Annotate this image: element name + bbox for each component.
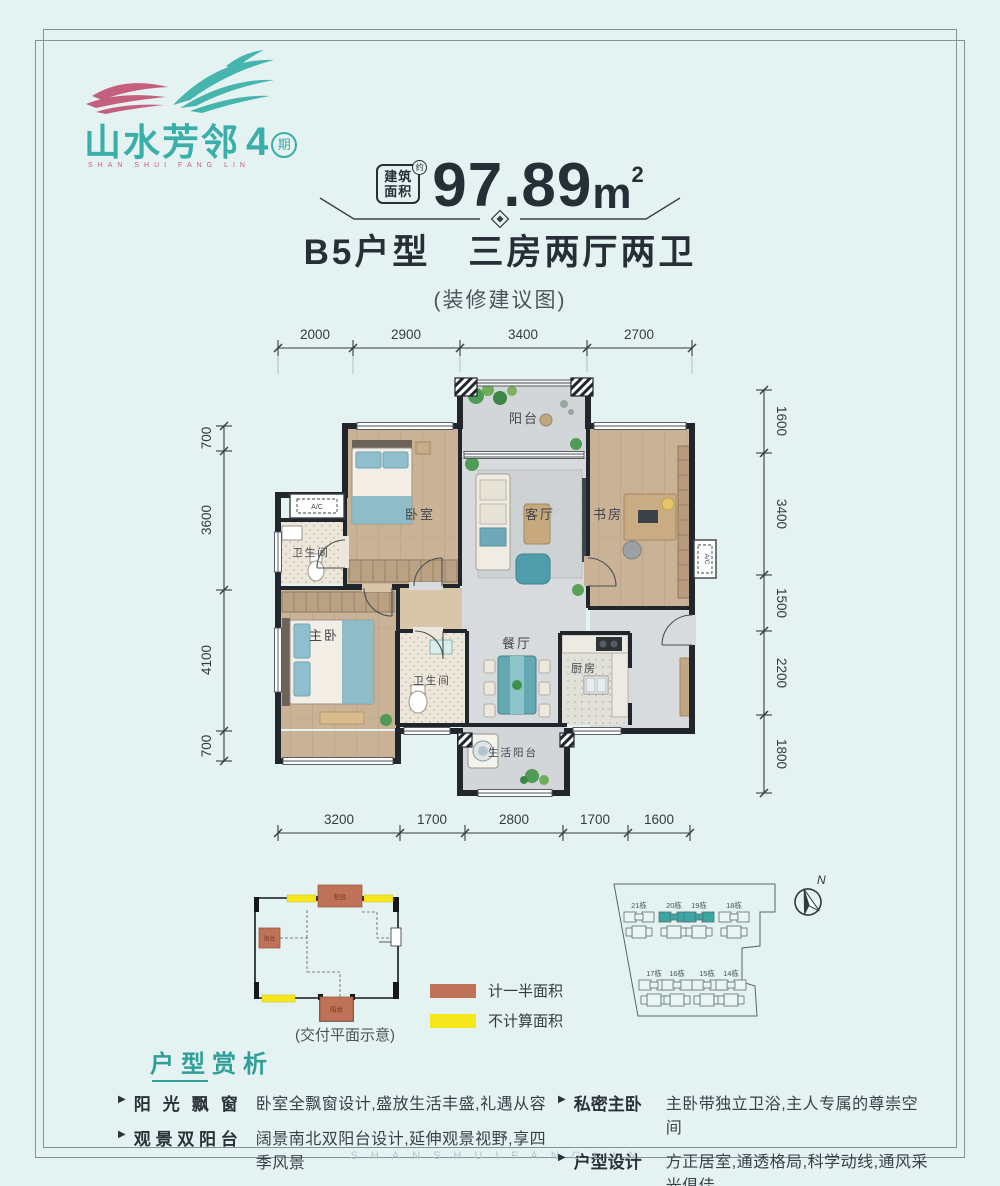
- label-bedroom: 卧室: [405, 507, 435, 522]
- svg-text:20栋: 20栋: [666, 900, 682, 910]
- legend-yellow-windows: [262, 895, 393, 1002]
- title-divider: [318, 192, 682, 228]
- legend-half-area: 计一半面积: [430, 980, 563, 1001]
- label-dining: 餐厅: [502, 636, 532, 651]
- phase-unit-badge: 期: [271, 132, 297, 158]
- north-arrow-icon: [791, 885, 824, 919]
- label-kitchen: 厨房: [571, 662, 597, 675]
- ac-unit-left: A/C: [290, 494, 344, 518]
- svg-text:4100: 4100: [199, 645, 214, 675]
- label-living: 客厅: [525, 507, 555, 522]
- ac-unit-right: A/C: [694, 540, 716, 578]
- svg-text:2700: 2700: [624, 328, 654, 342]
- label-study: 书房: [593, 507, 623, 522]
- svg-text:阳台: 阳台: [264, 935, 276, 943]
- label-bath1: 卫生间: [292, 546, 330, 559]
- analysis-item: ▶ 阳光飘窗 卧室全飘窗设计,盛放生活丰盛,礼遇从容: [118, 1090, 550, 1115]
- poster-page: 山水芳邻4期 SHAN SHUI FANG LIN 建筑 面积 约 97.89 …: [0, 0, 1000, 1186]
- legend-no-area: 不计算面积: [430, 1010, 563, 1031]
- svg-text:700: 700: [199, 427, 214, 450]
- svg-text:1500: 1500: [774, 588, 789, 618]
- svg-text:14栋: 14栋: [723, 968, 739, 978]
- approx-mark: 约: [412, 160, 427, 175]
- dining-furniture: [484, 656, 550, 717]
- unit-name: B5户型 三房两厅两卫: [0, 224, 1000, 275]
- svg-text:700: 700: [199, 735, 214, 758]
- svg-text:A/C: A/C: [311, 504, 323, 511]
- living-furniture: [465, 457, 588, 596]
- floor-plan: 2000 2900 3400 2700 3200 1700 2800: [180, 328, 820, 868]
- building-labels-bottom: 17栋 16栋 15栋 14栋: [646, 968, 739, 978]
- building-labels-top: 21栋 20栋 19栋 18栋: [631, 900, 742, 910]
- no-area-swatch: [430, 1014, 476, 1028]
- dimension-left: 700 3600 4100 700: [199, 422, 232, 765]
- svg-text:3200: 3200: [324, 812, 354, 827]
- label-master: 主卧: [309, 628, 339, 643]
- svg-text:2000: 2000: [300, 328, 330, 342]
- label-bath2: 卫生间: [413, 674, 451, 687]
- svg-text:17栋: 17栋: [646, 968, 662, 978]
- half-area-swatch: [430, 984, 476, 998]
- svg-text:1700: 1700: [580, 812, 610, 827]
- svg-text:3600: 3600: [199, 505, 214, 535]
- watermark: SHANSHUIFANGLIN: [0, 1150, 1000, 1162]
- svg-text:A/C: A/C: [703, 554, 710, 565]
- svg-text:3400: 3400: [774, 499, 789, 529]
- svg-text:2900: 2900: [391, 328, 421, 342]
- svg-text:19栋: 19栋: [691, 900, 707, 910]
- buildings-top-row: [624, 912, 749, 938]
- analysis-item: ▶ 观景双阳台 阔景南北双阳台设计,延伸观景视野,享四季风景: [118, 1125, 550, 1173]
- area-legend: 计一半面积 不计算面积: [430, 980, 563, 1040]
- north-label: N: [817, 873, 826, 887]
- svg-text:2200: 2200: [774, 658, 789, 688]
- triangle-bullet-icon: ▶: [118, 1129, 126, 1140]
- triangle-bullet-icon: ▶: [118, 1094, 126, 1105]
- svg-text:21栋: 21栋: [631, 900, 647, 910]
- dimension-bottom: 3200 1700 2800 1700 1600: [274, 812, 694, 841]
- bird-swoosh-icon: [78, 50, 288, 116]
- svg-text:2800: 2800: [499, 812, 529, 827]
- analysis-items: ▶ 阳光飘窗 卧室全飘窗设计,盛放生活丰盛,礼遇从容 ▶ 观景双阳台 阔景南北双…: [118, 1090, 933, 1186]
- brand-name: 山水芳邻: [84, 122, 240, 163]
- buildings-bottom-row: [639, 980, 746, 1006]
- svg-text:18栋: 18栋: [726, 900, 742, 910]
- label-balcony: 阳台: [509, 411, 539, 426]
- svg-text:阳台: 阳台: [334, 892, 347, 901]
- svg-text:3400: 3400: [508, 328, 538, 342]
- svg-text:1600: 1600: [644, 812, 674, 827]
- svg-text:阳台: 阳台: [330, 1005, 343, 1014]
- analysis-item: ▶ 私密主卧 主卧带独立卫浴,主人专属的尊崇空间: [558, 1090, 933, 1138]
- svg-text:1800: 1800: [774, 739, 789, 769]
- svg-text:16栋: 16栋: [669, 968, 685, 978]
- renovation-note: (装修建议图): [0, 284, 1000, 314]
- svg-text:15栋: 15栋: [699, 968, 715, 978]
- analysis-title: 户型赏析: [150, 1044, 274, 1079]
- svg-text:1700: 1700: [417, 812, 447, 827]
- delivery-schematic: 阳台 阳台 阳台: [245, 872, 435, 1032]
- dimension-right: 1600 3400 1500 2200 1800: [756, 386, 789, 797]
- svg-text:1600: 1600: [774, 406, 789, 436]
- site-plan: 21栋 20栋 19栋 18栋 17栋 16栋 15栋 14栋: [612, 872, 904, 1042]
- delivery-caption: (交付平面示意): [245, 1024, 445, 1045]
- triangle-bullet-icon: ▶: [558, 1094, 566, 1105]
- dimension-top: 2000 2900 3400 2700: [274, 328, 696, 374]
- label-service-balcony: 生活阳台: [488, 746, 538, 759]
- analysis-underline: [152, 1080, 208, 1082]
